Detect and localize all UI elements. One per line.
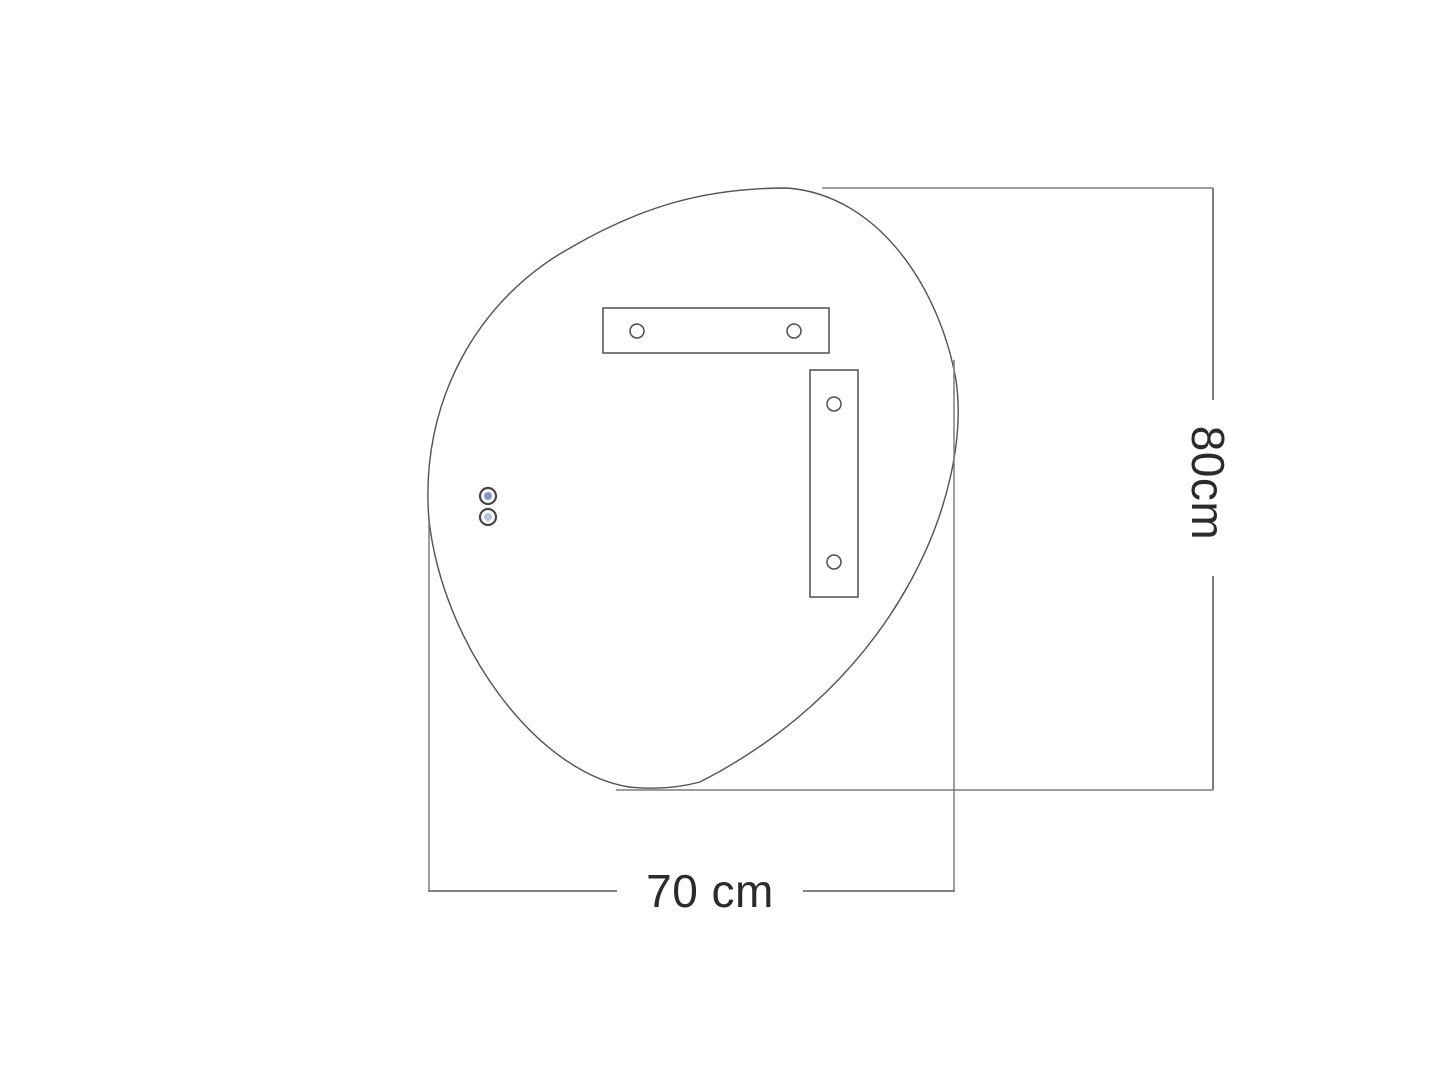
mounting-bracket-vertical [810,370,858,597]
width-dimension-line: 70 cm [428,865,955,917]
sensor-dot-icon [484,492,492,500]
bracket-screw-hole [827,555,841,569]
dimension-diagram-canvas: 80cm 70 cm [0,0,1440,1080]
mirror-dimension-drawing: 80cm 70 cm [0,0,1440,1080]
mounting-bracket-horizontal [603,308,829,353]
sensor-dot-icon [484,513,492,521]
bracket-screw-hole [630,324,644,338]
mirror-outline-shape [428,188,958,788]
bracket-screw-hole [787,324,801,338]
sensor-point-bottom [480,509,496,525]
width-dimension-label: 70 cm [646,865,774,917]
height-dimension-label: 80cm [1182,426,1234,540]
height-dimension-line: 80cm [1182,188,1234,790]
bracket-screw-hole [827,397,841,411]
sensor-point-top [480,488,496,504]
